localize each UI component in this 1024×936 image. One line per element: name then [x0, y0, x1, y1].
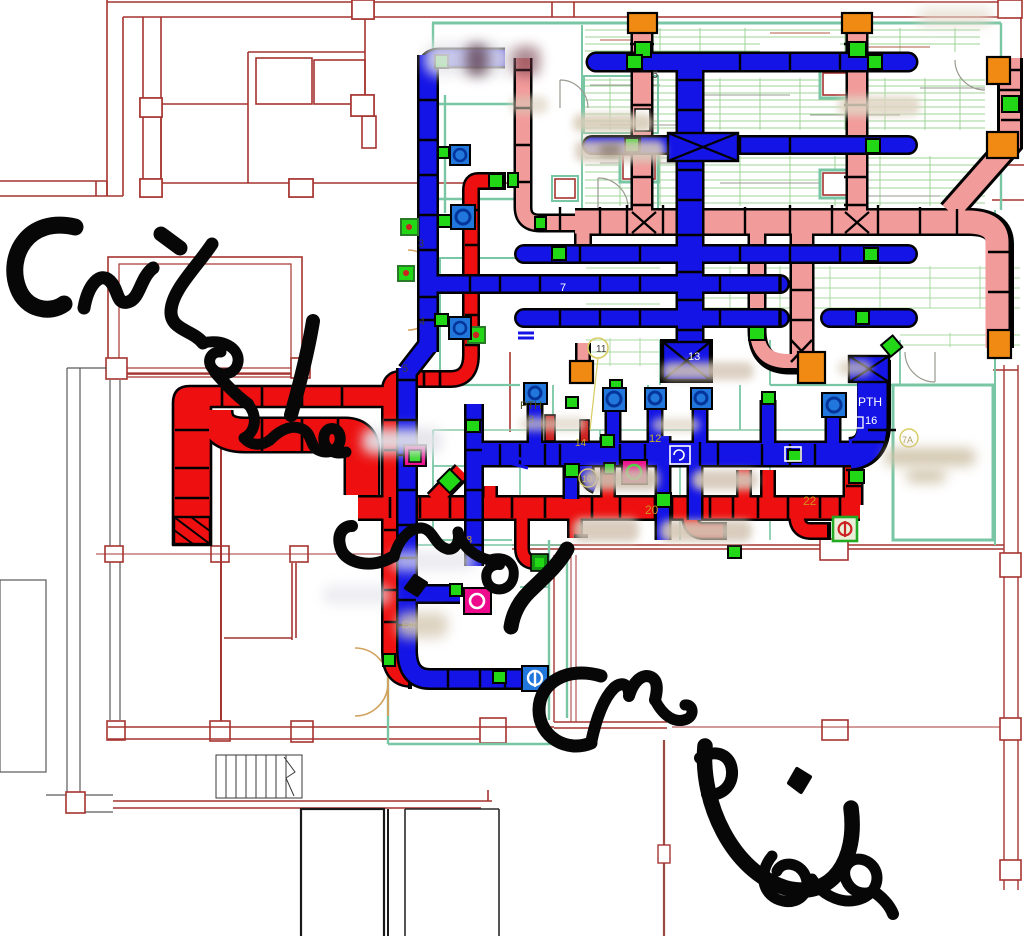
svg-text:11: 11 [596, 344, 607, 355]
svg-text:12: 12 [649, 433, 661, 445]
svg-text:13: 13 [688, 351, 700, 363]
svg-text:16: 16 [865, 415, 877, 427]
svg-text:14: 14 [575, 438, 587, 449]
svg-text:5: 5 [402, 363, 408, 375]
svg-text:22: 22 [803, 494, 817, 508]
svg-text:6: 6 [652, 69, 658, 81]
svg-text:3: 3 [418, 238, 424, 250]
svg-text:PTH: PTH [520, 400, 542, 412]
svg-text:20: 20 [645, 503, 659, 517]
svg-text:4: 4 [419, 316, 425, 328]
svg-text:PTH: PTH [858, 395, 882, 409]
svg-text:7A: 7A [902, 435, 913, 445]
svg-text:7: 7 [560, 282, 566, 294]
